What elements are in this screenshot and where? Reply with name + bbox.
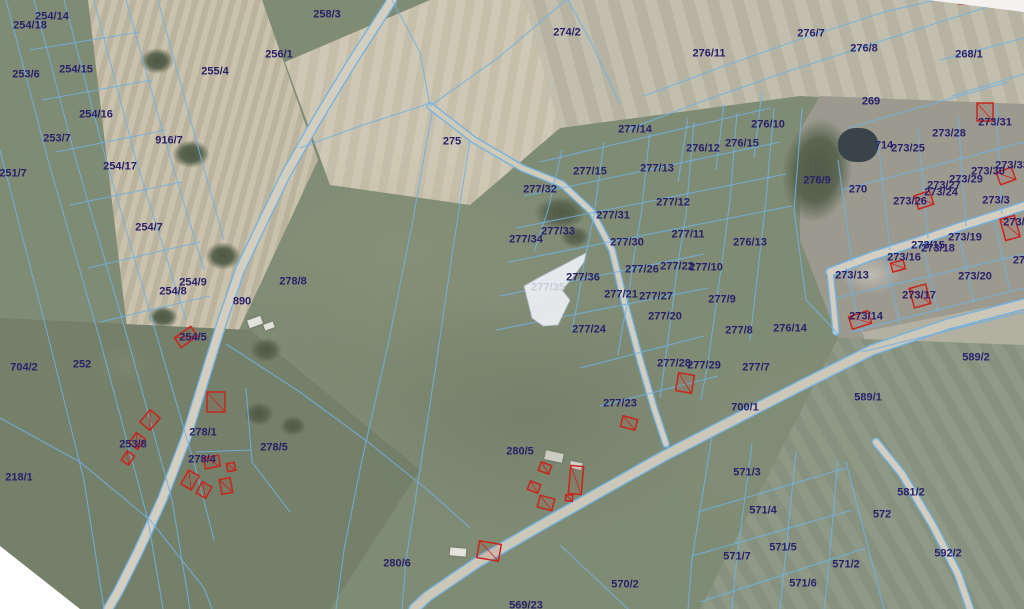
map-canvas[interactable]: 254/14254/18253/6254/15254/16253/7916/72…: [0, 0, 1024, 609]
parcel-label-273-14: 273/14: [849, 312, 883, 323]
parcel-label-252: 252: [73, 360, 91, 371]
parcel-label-589-1: 589/1: [854, 393, 882, 404]
parcel-label-273-13: 273/13: [835, 271, 869, 282]
parcel-label-273-26: 273/26: [893, 197, 927, 208]
parcel-label-276-7: 276/7: [797, 29, 825, 40]
parcel-label-253-7: 253/7: [43, 134, 71, 145]
parcel-label-254-17: 254/17: [103, 162, 137, 173]
parcel-label-571-5: 571/5: [769, 543, 797, 554]
parcel-label-572: 572: [873, 510, 891, 521]
parcel-label-273-17: 273/17: [902, 291, 936, 302]
parcel-label-277-31: 277/31: [596, 211, 630, 222]
parcel-label-276-10: 276/10: [751, 120, 785, 131]
parcel-label-704-2: 704/2: [10, 363, 38, 374]
parcel-label-277-13: 277/13: [640, 164, 674, 175]
parcel-label-916-7: 916/7: [155, 136, 183, 147]
parcel-label-589-2: 589/2: [962, 353, 990, 364]
parcel-label-27: 27: [1013, 256, 1024, 267]
parcel-label-277-36: 277/36: [566, 273, 600, 284]
parcel-label-273-25: 273/25: [891, 144, 925, 155]
parcel-label-254-5: 254/5: [179, 333, 207, 344]
parcel-label-581-2: 581/2: [897, 488, 925, 499]
parcel-label-273-2: 273/2: [1003, 218, 1024, 229]
parcel-label-278-5: 278/5: [260, 443, 288, 454]
parcel-label-278-8: 278/8: [279, 277, 307, 288]
parcel-label-277-30: 277/30: [610, 238, 644, 249]
parcel-label-890: 890: [233, 297, 251, 308]
parcel-label-256-1: 256/1: [265, 50, 293, 61]
parcel-label-273-24: 273/24: [924, 188, 958, 199]
parcel-label-251-7: 251/7: [0, 169, 27, 180]
parcel-label-571-2: 571/2: [832, 560, 860, 571]
parcel-label-280-5: 280/5: [506, 447, 534, 458]
parcel-label-254-18: 254/18: [13, 21, 47, 32]
parcel-label-277-20: 277/20: [648, 312, 682, 323]
parcel-label-218-1: 218/1: [5, 473, 33, 484]
parcel-label-571-4: 571/4: [749, 506, 777, 517]
parcel-label-569-23: 569/23: [509, 601, 543, 609]
parcel-label-273-3: 273/3: [982, 196, 1010, 207]
parcel-label-277-23: 277/23: [603, 399, 637, 410]
parcel-label-273-16: 273/16: [887, 253, 921, 264]
parcel-label-277-26: 277/26: [625, 265, 659, 276]
parcel-label-592-2: 592/2: [934, 549, 962, 560]
parcel-label-571-3: 571/3: [733, 468, 761, 479]
parcel-label-277-27: 277/27: [639, 292, 673, 303]
parcel-label-277-7: 277/7: [742, 363, 770, 374]
parcel-label-276-9: 276/9: [803, 176, 831, 187]
parcel-label-273-20: 273/20: [958, 272, 992, 283]
parcel-label-273-19: 273/19: [948, 233, 982, 244]
parcel-label-277-34: 277/34: [509, 235, 543, 246]
parcel-label-275: 275: [443, 137, 461, 148]
parcel-label-270: 270: [849, 185, 867, 196]
parcel-label-276-12: 276/12: [686, 144, 720, 155]
parcel-label-253-6: 253/6: [12, 70, 40, 81]
parcel-label-277-10: 277/10: [689, 263, 723, 274]
parcel-labels-layer: 254/14254/18253/6254/15254/16253/7916/72…: [0, 0, 1024, 609]
parcel-label-274-2: 274/2: [553, 28, 581, 39]
parcel-label-571-6: 571/6: [789, 579, 817, 590]
parcel-label-276-15: 276/15: [725, 139, 759, 150]
parcel-label-277-35: 277/35: [531, 283, 565, 294]
parcel-label-277-24: 277/24: [572, 325, 606, 336]
parcel-label-254-15: 254/15: [59, 65, 93, 76]
parcel-label-277-14: 277/14: [618, 125, 652, 136]
parcel-label-255-4: 255/4: [201, 67, 229, 78]
parcel-label-254-8: 254/8: [159, 287, 187, 298]
parcel-label-258-3: 258/3: [313, 10, 341, 21]
parcel-label-570-2: 570/2: [611, 580, 639, 591]
parcel-label-254-7: 254/7: [135, 223, 163, 234]
parcel-label-277-8: 277/8: [725, 326, 753, 337]
parcel-label-277-32: 277/32: [523, 185, 557, 196]
parcel-label-571-7: 571/7: [723, 552, 751, 563]
parcel-label-280-6: 280/6: [383, 559, 411, 570]
parcel-label-276-14: 276/14: [773, 324, 807, 335]
parcel-label-276-11: 276/11: [692, 49, 725, 60]
parcel-label-273-31: 273/31: [978, 118, 1012, 129]
parcel-label-276-13: 276/13: [733, 238, 767, 249]
parcel-label-254-16: 254/16: [79, 110, 113, 121]
parcel-label-278-1: 278/1: [189, 428, 217, 439]
parcel-label-273-28: 273/28: [932, 129, 966, 140]
parcel-label-273-18: 273/18: [921, 244, 955, 255]
parcel-label-276-8: 276/8: [850, 44, 878, 55]
parcel-label-277-33: 277/33: [541, 227, 575, 238]
parcel-label-277-9: 277/9: [708, 295, 736, 306]
parcel-label-277-11: 277/11: [671, 230, 704, 241]
parcel-label-253-8: 253/8: [119, 440, 147, 451]
parcel-label-277-29: 277/29: [687, 361, 721, 372]
parcel-label-277-21: 277/21: [604, 290, 638, 301]
parcel-label-277-15: 277/15: [573, 167, 607, 178]
parcel-label-277-28: 277/28: [657, 359, 691, 370]
parcel-label-278-4: 278/4: [188, 455, 216, 466]
parcel-label-269: 269: [862, 97, 880, 108]
parcel-label-268-1: 268/1: [955, 50, 983, 61]
parcel-label-277-12: 277/12: [656, 198, 690, 209]
parcel-label-700-1: 700/1: [731, 403, 759, 414]
